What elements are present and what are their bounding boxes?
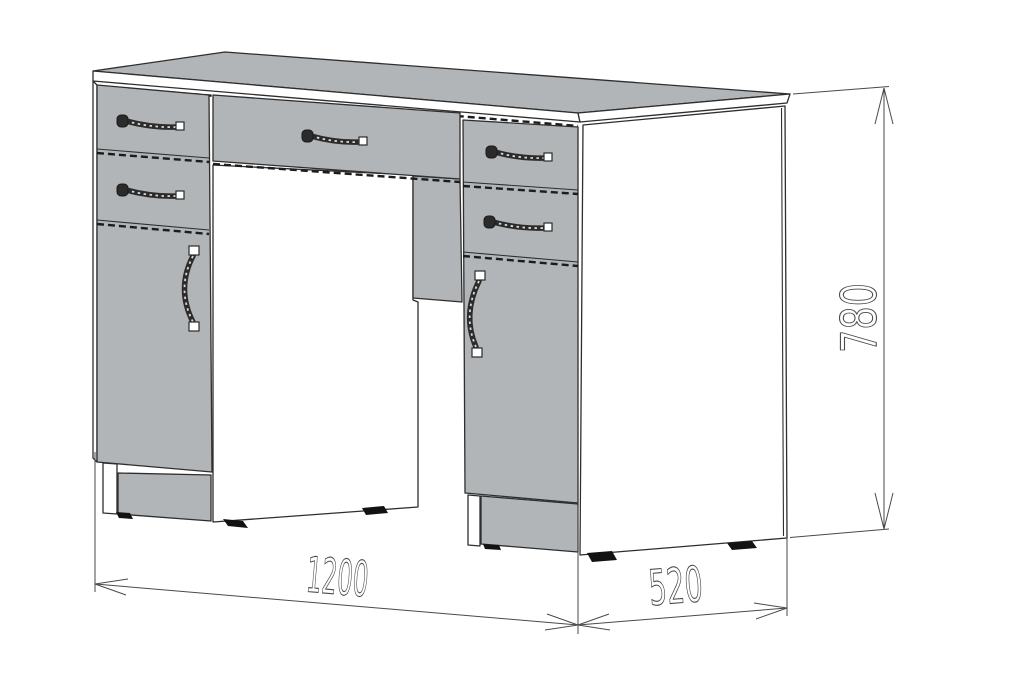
arrowhead [578, 614, 610, 630]
arrowhead [754, 603, 787, 619]
extension-line [790, 529, 889, 538]
desk-technical-drawing: 1200 520 780 [0, 0, 1014, 700]
foot [587, 551, 617, 562]
drawing-canvas: 1200 520 780 [0, 0, 1014, 700]
handle-plate [544, 153, 552, 161]
dimension-height-label: 780 [831, 283, 888, 353]
handle-cap [486, 146, 497, 158]
dimension-height: 780 [790, 87, 893, 538]
arrowhead [95, 579, 128, 595]
right-side-panel [580, 106, 787, 555]
handle-plate [176, 122, 184, 130]
side-panel [580, 106, 787, 555]
right-pedestal-front [463, 120, 578, 503]
handle-plate [359, 137, 367, 145]
handle-cap [117, 184, 128, 196]
handle-plate [475, 271, 485, 280]
right-pedestal [463, 120, 578, 552]
left-plinth [118, 473, 211, 521]
arrowhead [545, 614, 578, 630]
knee-hole-back-panel [213, 165, 418, 522]
handle-plate [189, 246, 199, 255]
back-panel [213, 165, 418, 522]
handle-cap [302, 130, 313, 142]
handle-plate [189, 322, 199, 331]
handle-plate [176, 191, 184, 199]
left-plinth-leg [103, 463, 117, 514]
handle-cap [117, 115, 128, 127]
extension-line [793, 87, 889, 95]
handle-cap [484, 216, 495, 228]
right-plinth [481, 496, 578, 552]
inner-side-panel [413, 176, 462, 302]
dimension-width-label: 1200 [304, 547, 371, 609]
handle-plate [472, 348, 482, 357]
handle-plate [544, 223, 552, 231]
right-plinth-leg [468, 495, 480, 546]
left-pedestal [97, 85, 212, 521]
left-pedestal-front [97, 85, 212, 472]
dimension-depth-label: 520 [646, 556, 704, 617]
